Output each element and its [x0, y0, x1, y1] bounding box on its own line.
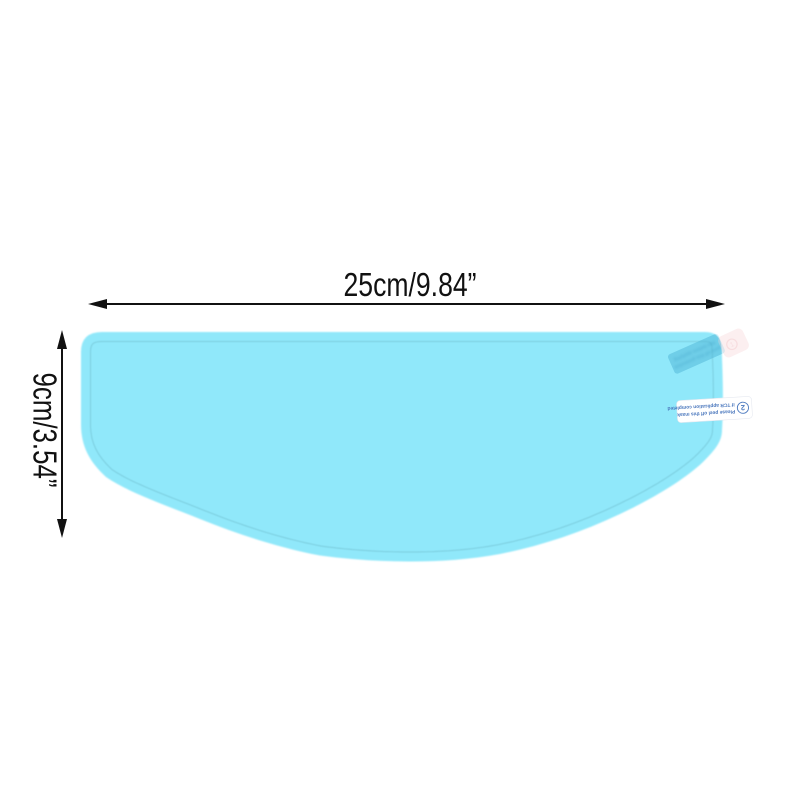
svg-text:9cm/3.54”: 9cm/3.54”	[27, 373, 64, 488]
svg-text:2: 2	[741, 403, 746, 412]
svg-text:25cm/9.84”: 25cm/9.84”	[344, 266, 477, 303]
